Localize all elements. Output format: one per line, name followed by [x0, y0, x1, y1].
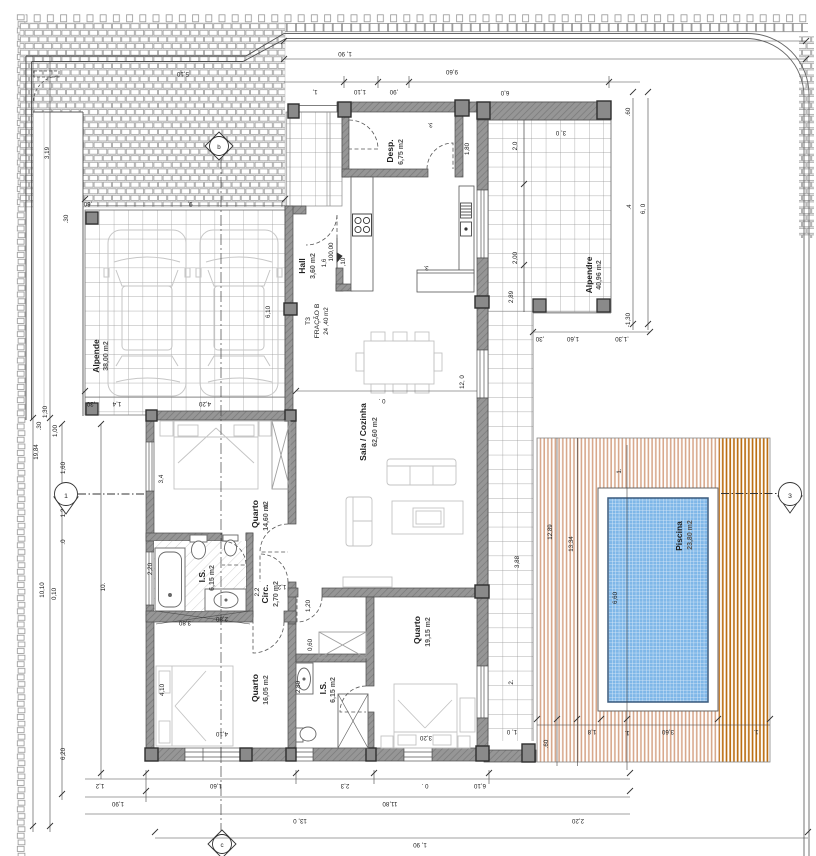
- svg-text:1, 0: 1, 0: [506, 728, 517, 735]
- svg-text:3,80: 3,80: [178, 619, 191, 626]
- svg-text:23,80 m2: 23,80 m2: [687, 520, 694, 550]
- svg-text:62,60 m2: 62,60 m2: [372, 417, 379, 447]
- svg-text:Piscina: Piscina: [674, 521, 684, 551]
- svg-text:2,3: 2,3: [340, 782, 349, 789]
- svg-text:. 0: . 0: [263, 504, 270, 511]
- svg-text:100,00: 100,00: [328, 242, 335, 261]
- svg-text:6,10: 6,10: [473, 782, 486, 789]
- svg-text:,60: ,60: [83, 200, 92, 207]
- svg-text:12,89: 12,89: [547, 524, 554, 540]
- svg-text:1.: 1.: [624, 729, 629, 736]
- svg-text:2,2: 2,2: [254, 587, 261, 596]
- svg-text:1, 90: 1, 90: [338, 50, 352, 57]
- svg-text:2,0: 2,0: [512, 141, 519, 150]
- svg-text:,30: ,30: [535, 335, 544, 342]
- svg-text:3,19: 3,19: [44, 146, 51, 159]
- svg-text:1.: 1.: [753, 728, 758, 735]
- svg-text:1,10: 1,10: [353, 88, 366, 95]
- svg-text:4,20: 4,20: [198, 400, 211, 407]
- svg-text:FRAÇÃO B: FRAÇÃO B: [312, 303, 321, 338]
- svg-text:Desp.: Desp.: [385, 139, 395, 162]
- svg-text:3.: 3.: [427, 121, 432, 128]
- svg-text:6,75 m2: 6,75 m2: [398, 139, 405, 165]
- svg-text:0 .: 0 .: [378, 397, 385, 404]
- svg-text:1,00: 1,00: [52, 424, 59, 437]
- svg-text:c: c: [220, 842, 223, 849]
- svg-text:2,80: 2,80: [295, 680, 302, 693]
- svg-text:6,15 m2: 6,15 m2: [330, 677, 337, 703]
- svg-text:1,4: 1,4: [112, 400, 121, 407]
- svg-text:.0: .0: [60, 539, 67, 545]
- svg-text:Alpende: Alpende: [91, 339, 101, 373]
- svg-text:3.: 3.: [423, 264, 428, 271]
- svg-text:3: 3: [788, 493, 792, 500]
- svg-text:Hall: Hall: [297, 258, 307, 274]
- svg-text:3, 0: 3, 0: [555, 129, 566, 136]
- svg-text:6,15 m2: 6,15 m2: [209, 565, 216, 591]
- svg-text:Quarto: Quarto: [412, 616, 422, 644]
- svg-text:2,00: 2,00: [512, 251, 519, 264]
- svg-text:5,10: 5,10: [176, 70, 189, 77]
- svg-text:1: 1: [64, 493, 68, 500]
- svg-text:4,10: 4,10: [215, 730, 228, 737]
- svg-text:40,96 m2: 40,96 m2: [596, 260, 603, 290]
- svg-text:Quarto: Quarto: [250, 674, 260, 702]
- svg-text:2,89: 2,89: [508, 290, 515, 303]
- svg-text:6,0: 6,0: [500, 89, 509, 96]
- svg-text:16,05 m2: 16,05 m2: [263, 675, 270, 705]
- svg-text:,1,30: ,1,30: [615, 335, 629, 342]
- svg-text:.30: .30: [63, 214, 70, 223]
- svg-text:1,80: 1,80: [464, 142, 471, 155]
- svg-text:12, 0: 12, 0: [459, 375, 466, 389]
- svg-text:13, 0: 13, 0: [293, 817, 307, 824]
- svg-text:b: b: [217, 144, 221, 151]
- svg-text:.60: .60: [543, 739, 550, 748]
- svg-text:19,15 m2: 19,15 m2: [425, 617, 432, 647]
- svg-text:,10: ,10: [340, 257, 347, 266]
- svg-text:6,60: 6,60: [612, 591, 619, 604]
- svg-text:0,10: 0,10: [51, 587, 58, 600]
- svg-text:1,60: 1,60: [209, 782, 222, 789]
- svg-text:13,34: 13,34: [568, 536, 575, 552]
- svg-text:Alpendre: Alpendre: [584, 256, 594, 293]
- svg-text:.60: .60: [625, 107, 632, 116]
- svg-text:,30: ,30: [86, 400, 95, 407]
- svg-text:3,20: 3,20: [419, 734, 432, 741]
- svg-text:3,60: 3,60: [661, 728, 674, 735]
- svg-text:.4: .4: [626, 204, 633, 210]
- svg-text:1,20: 1,20: [305, 599, 312, 612]
- svg-text:9,60: 9,60: [445, 68, 458, 75]
- svg-text:1,30: 1,30: [42, 405, 49, 418]
- svg-text:3,60 m2: 3,60 m2: [310, 253, 317, 279]
- svg-text:3,4: 3,4: [158, 474, 165, 483]
- svg-text:I.S.: I.S.: [197, 570, 207, 583]
- svg-text:2,20: 2,20: [571, 817, 584, 824]
- svg-text:1,: 1,: [312, 88, 317, 95]
- svg-text:9,: 9,: [187, 200, 192, 207]
- svg-text:38,00 m2: 38,00 m2: [103, 341, 110, 371]
- svg-text:T3: T3: [305, 317, 312, 325]
- svg-text:10.: 10.: [100, 582, 107, 591]
- svg-text:1,60: 1,60: [60, 461, 67, 474]
- svg-text:,90: ,90: [389, 88, 398, 95]
- svg-text:Sala / Cozinha: Sala / Cozinha: [358, 403, 368, 461]
- svg-text:Quarto: Quarto: [250, 500, 260, 528]
- svg-text:1,2: 1,2: [277, 583, 286, 590]
- svg-text:10,10: 10,10: [39, 582, 46, 598]
- svg-text:1,90: 1,90: [111, 800, 124, 807]
- svg-text:2.: 2.: [508, 679, 515, 684]
- svg-text:.30: .30: [36, 421, 43, 430]
- svg-text:-1,30: -1,30: [625, 312, 632, 327]
- svg-text:1,2: 1,2: [95, 782, 104, 789]
- svg-text:1, 90: 1, 90: [413, 841, 427, 848]
- svg-text:2,20: 2,20: [147, 562, 154, 575]
- svg-text:4,10: 4,10: [159, 683, 166, 696]
- svg-text:1,8: 1,8: [587, 728, 596, 735]
- svg-text:2,80: 2,80: [215, 615, 228, 622]
- svg-text:0,60: 0,60: [307, 638, 314, 651]
- svg-text:0 .: 0 .: [421, 782, 428, 789]
- svg-text:1.: 1.: [616, 468, 623, 473]
- svg-text:3,88: 3,88: [514, 555, 521, 568]
- svg-text:19,84: 19,84: [33, 444, 40, 460]
- svg-text:11,80: 11,80: [382, 800, 398, 807]
- svg-text:1,6: 1,6: [321, 258, 328, 267]
- svg-text:I.S.: I.S.: [318, 682, 328, 695]
- svg-text:6,10: 6,10: [265, 305, 272, 318]
- svg-text:Circ.: Circ.: [260, 585, 270, 604]
- svg-text:24 ,40 m2: 24 ,40 m2: [323, 307, 330, 335]
- svg-text:1,60: 1,60: [566, 335, 579, 342]
- svg-text:6,20: 6,20: [60, 747, 67, 760]
- svg-text:6, 0: 6, 0: [640, 203, 647, 214]
